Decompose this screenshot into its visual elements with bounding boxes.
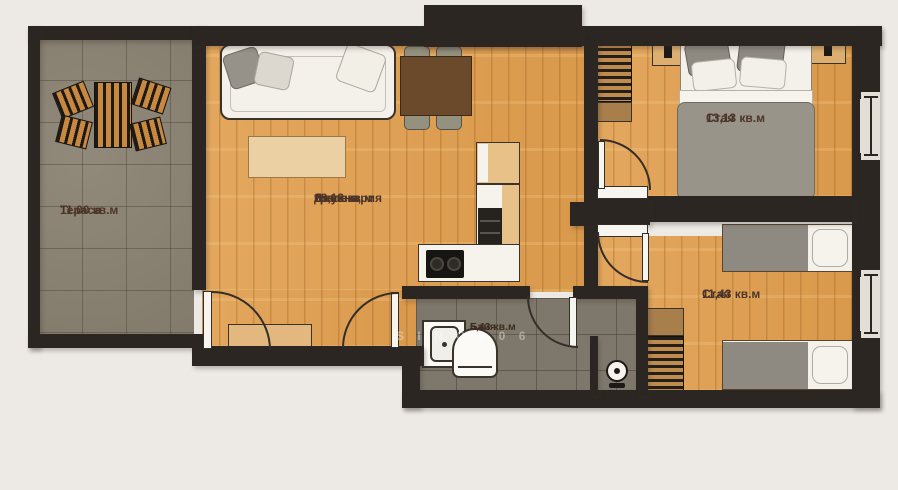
- terrace-wall-top: [28, 26, 204, 40]
- bedroom1-area: 13,13 кв.м: [706, 110, 765, 126]
- bath-hall-divider: [590, 336, 598, 396]
- terrace-wall-left: [28, 26, 40, 348]
- bedroom1-door-leaf: [598, 141, 605, 189]
- rug: [248, 136, 346, 178]
- hall-bedroom2-wall: [636, 286, 648, 396]
- wardrobe: [594, 40, 632, 102]
- kitchen-oven-shelf-line: [480, 232, 500, 234]
- terrace-table: [94, 82, 132, 148]
- wall-right: [852, 26, 880, 408]
- bathroom-wall-top-left: [402, 286, 530, 299]
- wardrobe-top: [646, 308, 684, 336]
- wall-pillar: [570, 202, 598, 226]
- toilet-seat-line: [458, 366, 492, 372]
- bedroom2-door-leaf: [642, 233, 649, 281]
- kitchen-tall-cabinet-front: [478, 144, 488, 182]
- door-threshold-bedroom2: [597, 224, 648, 237]
- bedroom2-area: 11,43 кв.м: [702, 286, 760, 302]
- living-bedroom-wall: [584, 40, 598, 290]
- terrace-wall-bottom: [28, 334, 206, 348]
- floor-lamp-base: [609, 383, 625, 388]
- kitchen-oven-shelf-line: [480, 220, 500, 222]
- wardrobe-shelf: [594, 102, 632, 122]
- terrace-area: 11.00 кв.м: [60, 202, 118, 218]
- floor-lamp-bulb: [614, 368, 620, 374]
- cooktop-burner: [447, 257, 461, 271]
- sideboard: [228, 324, 312, 347]
- watermark-text: S I N O 0 0 6: [396, 329, 596, 343]
- cooktop-burner: [430, 257, 444, 271]
- living-wall-bottom: [192, 346, 424, 366]
- dining-table: [400, 56, 472, 116]
- bed-pillow-white: [691, 58, 738, 92]
- bathroom-wall-top-right: [573, 286, 643, 299]
- single-bed-top-pillow: [812, 229, 848, 267]
- door-stub-wall: [596, 199, 650, 225]
- wardrobe: [646, 336, 684, 396]
- nightstand-lamp: [664, 44, 672, 58]
- terrace-living-wall: [192, 26, 206, 290]
- sofa-pillow: [253, 51, 295, 92]
- living-area: 28,13 кв.м: [314, 190, 373, 206]
- wall-top-chunk: [424, 5, 582, 47]
- terrace-door-leaf: [203, 291, 212, 349]
- single-bed-bottom-pillow: [812, 346, 848, 384]
- bedroom-divider-wall: [648, 196, 854, 222]
- single-bed-bottom-blanket: [723, 342, 808, 389]
- single-bed-top-blanket: [723, 225, 808, 271]
- floor-plan: Тераса 11.00 кв.м Дневна, трапезария и к…: [0, 0, 898, 490]
- bed-pillow-white: [739, 56, 787, 90]
